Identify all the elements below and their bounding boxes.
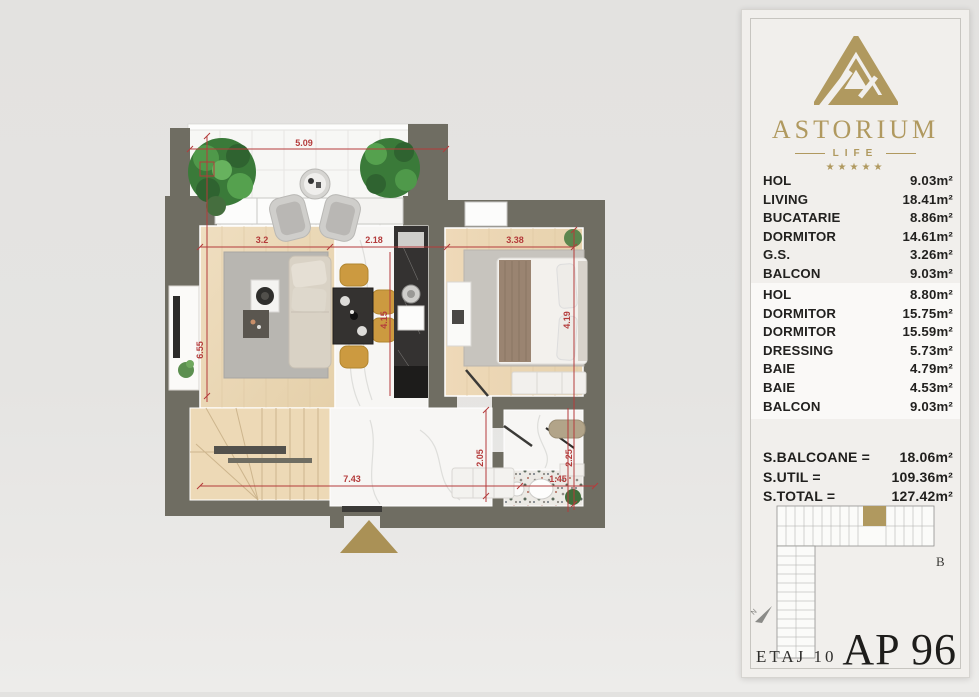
tree (188, 138, 256, 206)
hall-bench (452, 468, 514, 498)
north-letter: N (750, 608, 759, 617)
astorium-logo-icon (814, 36, 898, 106)
bathtub (549, 420, 585, 438)
room-label: DRESSING (763, 342, 833, 361)
plant (565, 489, 581, 505)
room-row: G.S.3.26m² (763, 246, 953, 265)
room-area: 9.03m² (910, 398, 953, 417)
bedroom-bench (512, 372, 586, 394)
dim-label-kitchen-width: 2.18 (365, 235, 383, 245)
room-area: 4.53m² (910, 379, 953, 398)
room-row: HOL9.03m² (763, 172, 953, 191)
room-label: DORMITOR (763, 228, 836, 247)
total-row: S.UTIL =109.36m² (763, 468, 953, 488)
dim-label-balcony-width: 5.09 (295, 138, 313, 148)
room-row: BAIE4.53m² (763, 379, 953, 398)
keyplan-building-letter: B (936, 554, 945, 569)
room-label: DORMITOR (763, 305, 836, 324)
room-label: HOL (763, 172, 791, 191)
room-label: LIVING (763, 191, 808, 210)
room-row: DORMITOR15.59m² (763, 323, 953, 342)
room-area: 15.75m² (902, 305, 953, 324)
dim-label-hall-height: 2.05 (475, 449, 485, 467)
dim-label-living-width: 3.2 (256, 235, 269, 245)
dining-chair (340, 264, 368, 286)
room-label: BAIE (763, 379, 795, 398)
entrance-door (342, 506, 382, 512)
room-row: LIVING18.41m² (763, 191, 953, 210)
room-area: 8.86m² (910, 209, 953, 228)
cooktop (398, 306, 424, 330)
room-area: 14.61m² (902, 228, 953, 247)
divider (886, 153, 916, 154)
dim-label-bedroom-height: 4.19 (562, 311, 572, 329)
room-row: DORMITOR15.75m² (763, 305, 953, 324)
floor-plan: 5.09 3.2 2.18 3.38 6.55 4.15 4.19 7.43 2… (0, 0, 740, 692)
info-panel: ASTORIUM LIFE ★★★★★ HOL9.03m² LIVING18.4… (741, 9, 970, 678)
room-row: BALCON9.03m² (763, 398, 953, 417)
room-list-unit-2: HOL8.80m² DORMITOR15.75m² DORMITOR15.59m… (751, 283, 960, 419)
floor-plan-area: 5.09 3.2 2.18 3.38 6.55 4.15 4.19 7.43 2… (0, 0, 740, 692)
total-value: 109.36m² (891, 468, 953, 488)
brand-name: ASTORIUM (742, 115, 969, 145)
dining-chair (340, 346, 368, 368)
keyplan-highlighted-unit (863, 506, 886, 526)
dim-label-bath-height: 2.25 (564, 449, 574, 467)
divider (795, 153, 825, 154)
room-label: BAIE (763, 360, 795, 379)
brand-subtitle-row: LIFE (742, 148, 969, 159)
floor-label: ETAJ 10 (756, 647, 837, 667)
tv (173, 296, 180, 358)
room-area: 9.03m² (910, 265, 953, 284)
room-label: HOL (763, 286, 791, 305)
room-area: 15.59m² (902, 323, 953, 342)
kitchen (394, 226, 428, 398)
room-list-unit-1: HOL9.03m² LIVING18.41m² BUCATARIE8.86m² … (763, 172, 953, 284)
brand-block: ASTORIUM LIFE ★★★★★ (742, 36, 969, 173)
total-label: S.BALCOANE = (763, 448, 870, 468)
side-table (243, 310, 269, 338)
room-row: DRESSING5.73m² (763, 342, 953, 361)
room-label: BUCATARIE (763, 209, 841, 228)
room-row: BALCON9.03m² (763, 265, 953, 284)
dim-label-dining-height: 4.15 (379, 311, 389, 329)
room-label: DORMITOR (763, 323, 836, 342)
total-label: S.UTIL = (763, 468, 821, 488)
room-area: 9.03m² (910, 172, 953, 191)
north-arrow: N (750, 601, 778, 634)
room-area: 5.73m² (910, 342, 953, 361)
total-row: S.BALCOANE =18.06m² (763, 448, 953, 468)
dim-label-hall-width: 7.43 (343, 474, 361, 484)
room-label: G.S. (763, 246, 790, 265)
dim-label-bedroom-width: 3.38 (506, 235, 524, 245)
shrub (206, 196, 226, 216)
room-area: 18.41m² (902, 191, 953, 210)
dim-label-living-height: 6.55 (195, 341, 205, 359)
dining-chair (372, 290, 396, 314)
brand-subtitle: LIFE (833, 148, 879, 159)
totals-block: S.BALCOANE =18.06m² S.UTIL =109.36m² S.T… (763, 448, 953, 507)
room-area: 4.79m² (910, 360, 953, 379)
tree (360, 138, 420, 198)
room-row: HOL8.80m² (763, 286, 953, 305)
room-row: BUCATARIE8.86m² (763, 209, 953, 228)
total-value: 18.06m² (899, 448, 953, 468)
dim-label-bath-width: 1.45 (549, 474, 567, 484)
apartment-number: AP 96 (842, 624, 957, 675)
room-label: BALCON (763, 265, 821, 284)
room-area: 8.80m² (910, 286, 953, 305)
hallway (452, 468, 514, 498)
room-row: BAIE4.79m² (763, 360, 953, 379)
room-area: 3.26m² (910, 246, 953, 265)
room-row: DORMITOR14.61m² (763, 228, 953, 247)
room-label: BALCON (763, 398, 821, 417)
